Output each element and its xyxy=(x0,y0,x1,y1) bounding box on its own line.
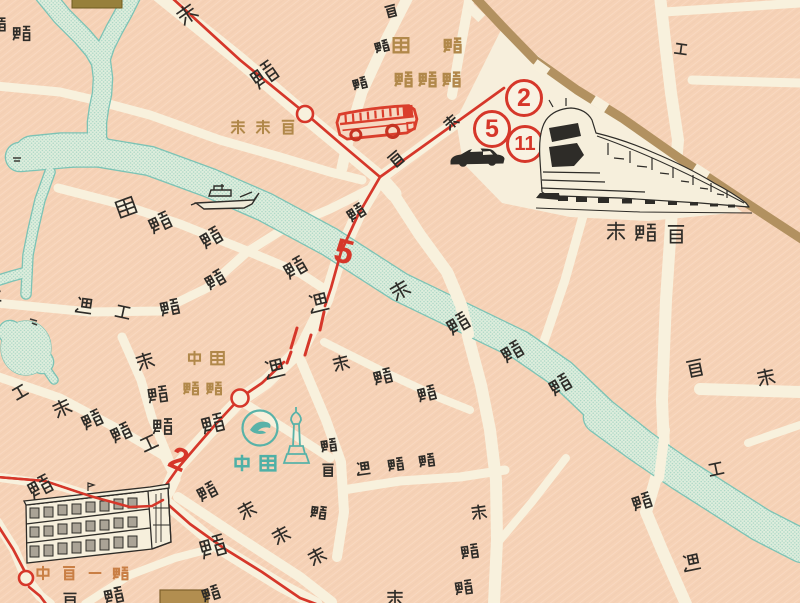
svg-text:11: 11 xyxy=(514,133,535,155)
svg-text:2: 2 xyxy=(517,84,531,112)
svg-text:5: 5 xyxy=(485,115,499,143)
